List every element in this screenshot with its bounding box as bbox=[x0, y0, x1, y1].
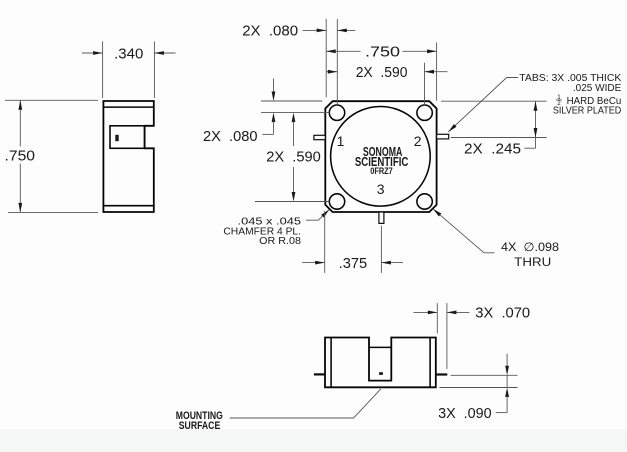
svg-text:.750: .750 bbox=[365, 44, 400, 61]
svg-text:3X .090: 3X .090 bbox=[438, 405, 492, 422]
svg-text:3X .070: 3X .070 bbox=[475, 305, 530, 322]
svg-text:2: 2 bbox=[414, 133, 422, 149]
svg-text:1: 1 bbox=[337, 133, 345, 149]
svg-text:2X .080: 2X .080 bbox=[203, 128, 258, 145]
svg-text:2X .080: 2X .080 bbox=[242, 22, 298, 39]
svg-text:.750: .750 bbox=[5, 148, 36, 165]
svg-text:.375: .375 bbox=[339, 255, 368, 272]
svg-text:.340: .340 bbox=[114, 45, 143, 62]
svg-text:2X .245: 2X .245 bbox=[464, 141, 521, 158]
svg-text:0FRZ7: 0FRZ7 bbox=[370, 166, 393, 177]
svg-text:2X .590: 2X .590 bbox=[266, 149, 321, 166]
svg-text:SILVER PLATED: SILVER PLATED bbox=[553, 106, 621, 117]
svg-text:SURFACE: SURFACE bbox=[179, 420, 221, 432]
svg-text:2X .590: 2X .590 bbox=[356, 64, 408, 81]
svg-text:4X ∅.098: 4X ∅.098 bbox=[501, 240, 559, 254]
svg-text:OR R.08: OR R.08 bbox=[259, 236, 301, 247]
svg-text:.025 WIDE: .025 WIDE bbox=[573, 83, 622, 94]
svg-text:2: 2 bbox=[557, 100, 561, 107]
svg-text:THRU: THRU bbox=[514, 255, 551, 269]
svg-text:3: 3 bbox=[377, 181, 385, 197]
